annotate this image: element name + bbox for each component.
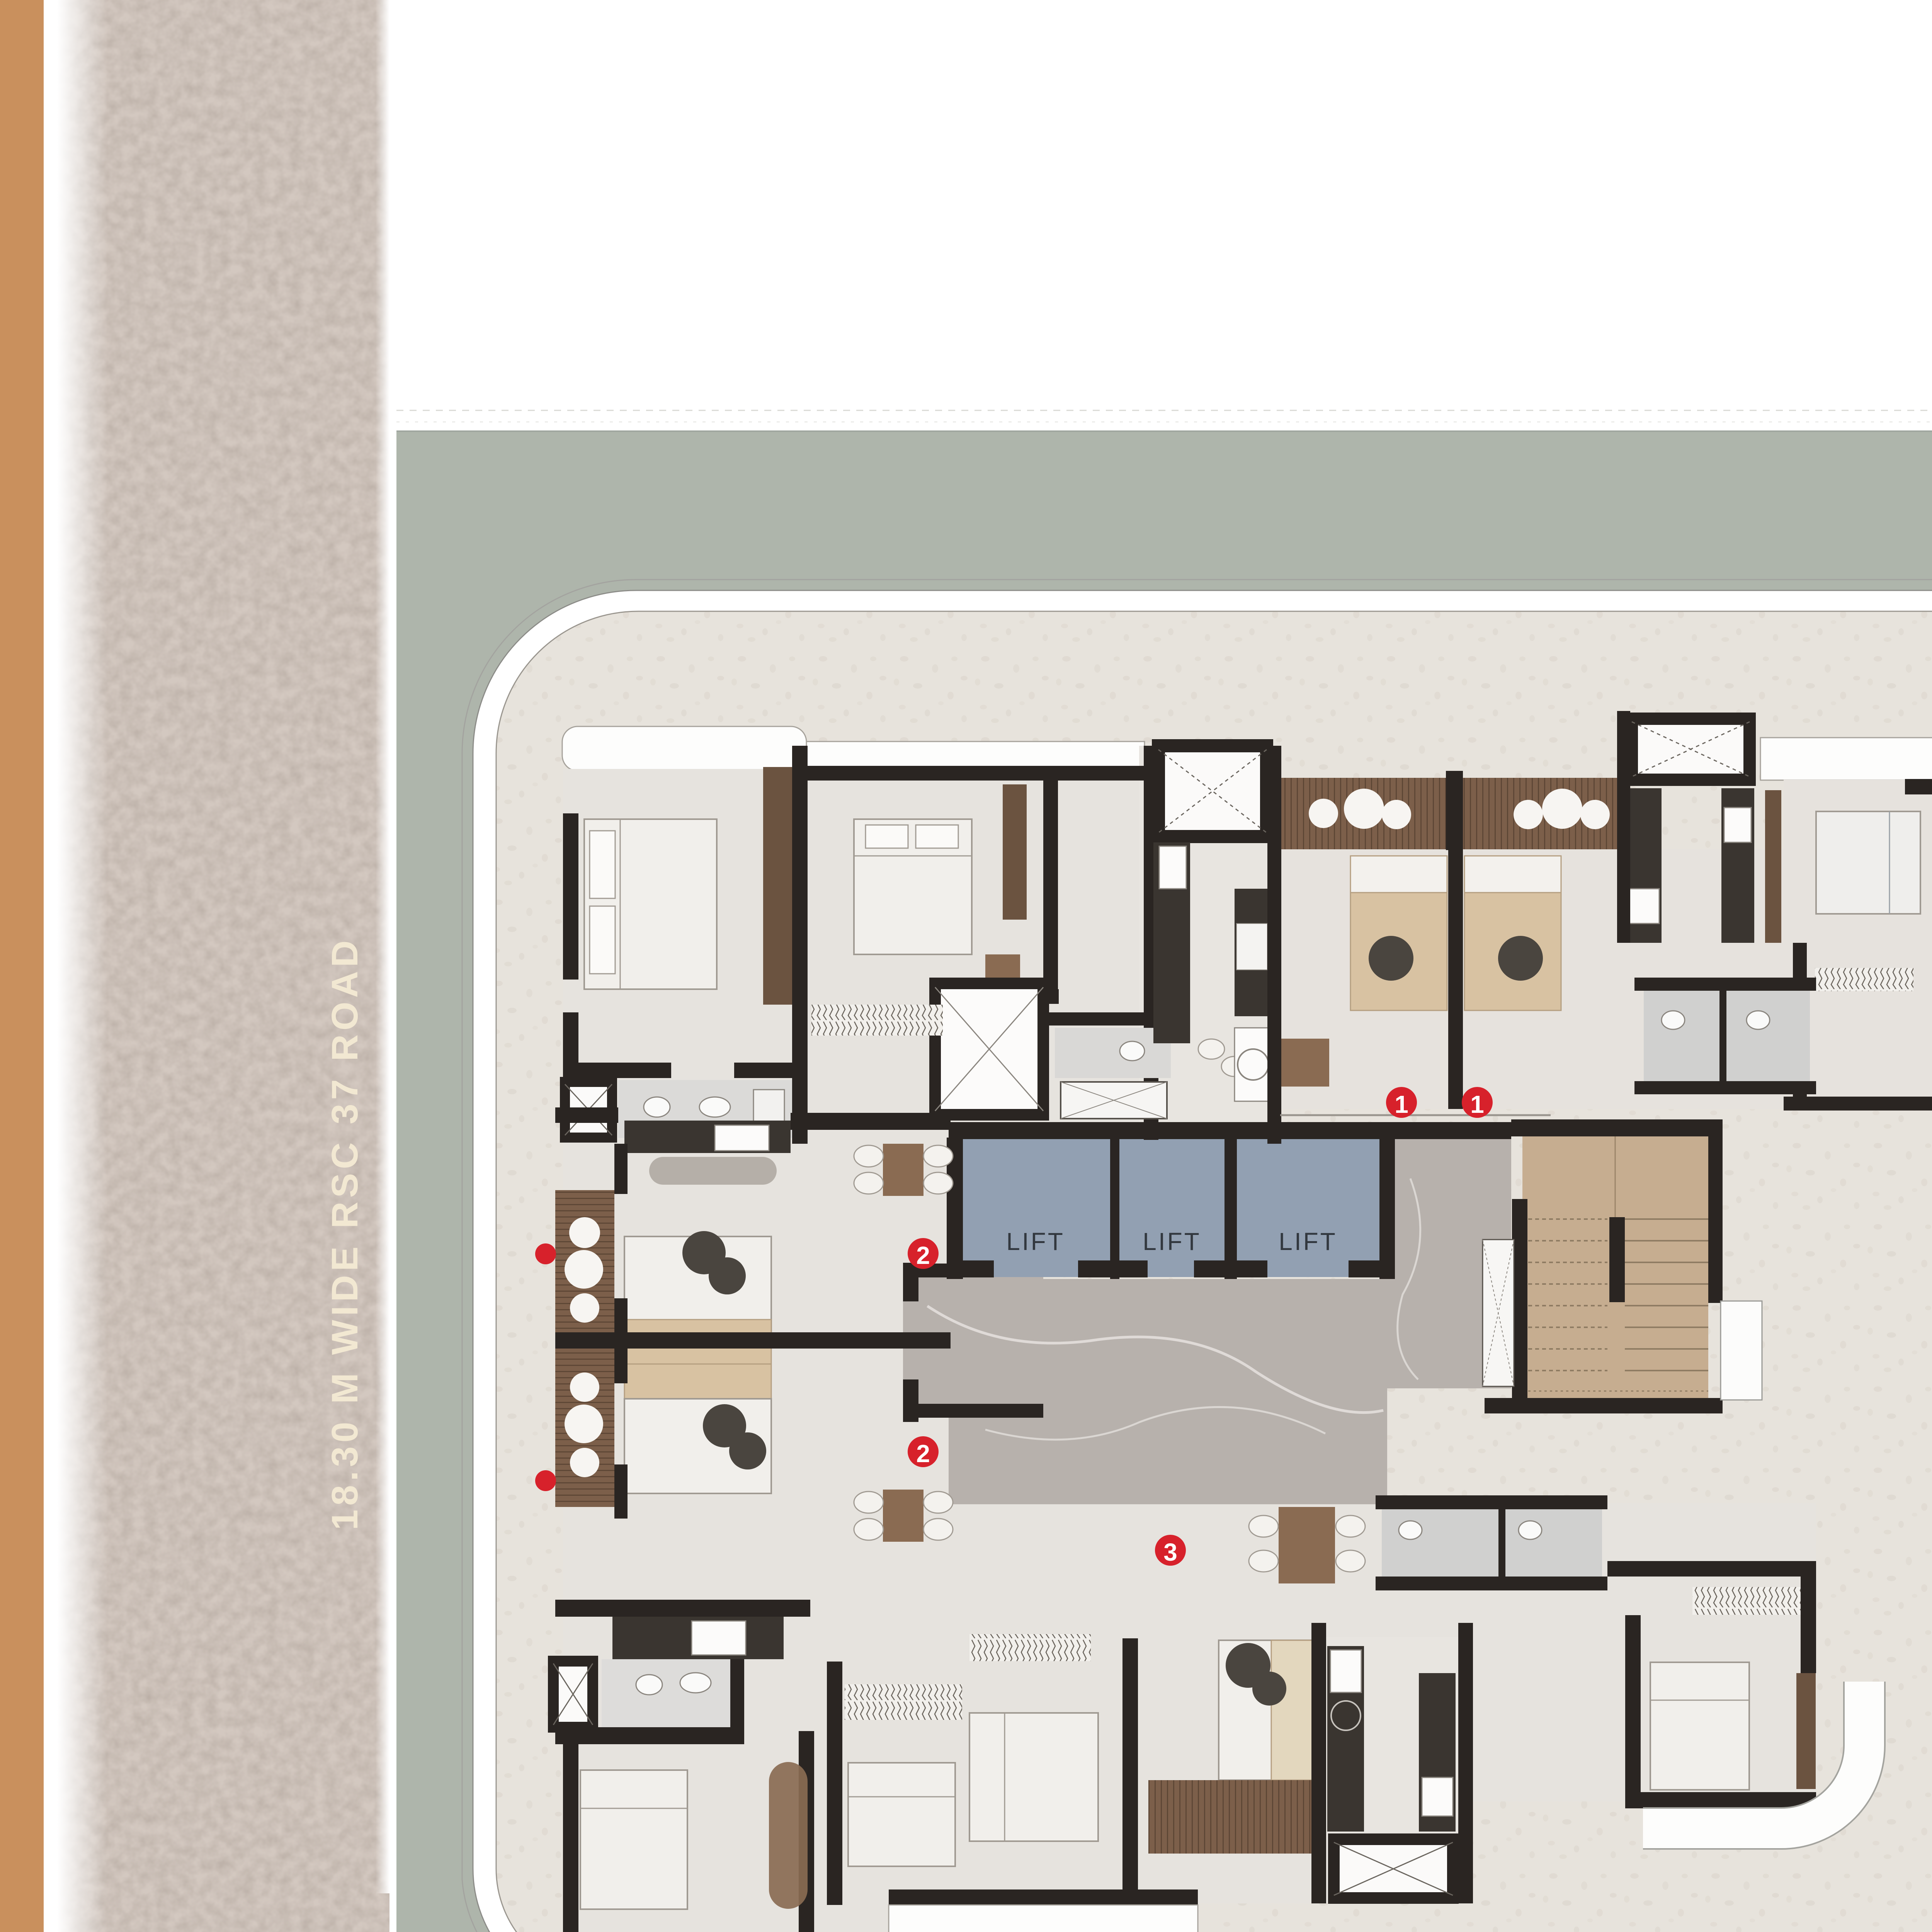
- svg-text:3: 3: [1163, 1538, 1177, 1566]
- svg-text:1: 1: [1395, 1090, 1408, 1118]
- svg-text:2: 2: [916, 1242, 930, 1269]
- svg-text:LIFT: LIFT: [1279, 1228, 1337, 1255]
- svg-text:1: 1: [1470, 1090, 1484, 1118]
- svg-text:LIFT: LIFT: [1143, 1228, 1201, 1255]
- svg-text:18.30 M WIDE RSC 37 ROAD: 18.30 M WIDE RSC 37 ROAD: [324, 937, 366, 1530]
- svg-text:LIFT: LIFT: [1006, 1228, 1065, 1255]
- svg-text:2: 2: [916, 1440, 930, 1468]
